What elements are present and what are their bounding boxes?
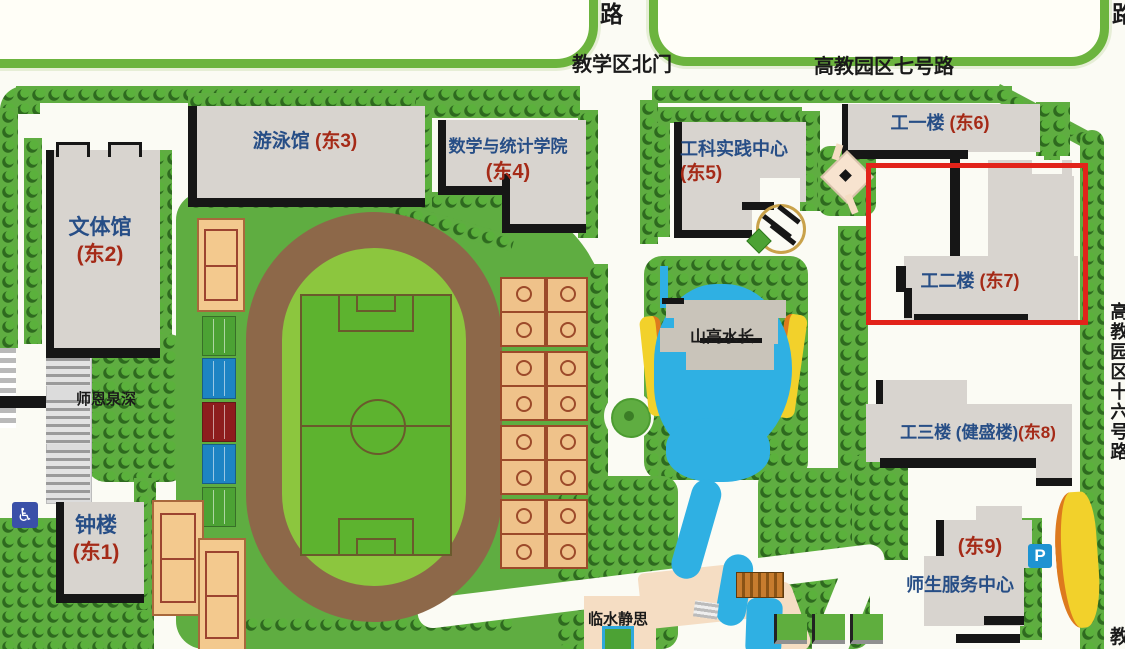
east1-tag: (东1) bbox=[73, 541, 120, 564]
building-east9-tag-label: (东9) bbox=[940, 534, 1020, 560]
parking-icon: P bbox=[1028, 544, 1052, 568]
building-east1-label: 钟楼 (东1) bbox=[58, 512, 134, 567]
pond-label: 山高水长 bbox=[690, 328, 754, 349]
roundabout-center bbox=[624, 411, 634, 421]
pond-south-lobe bbox=[666, 418, 770, 482]
small-court-green-2 bbox=[202, 487, 236, 527]
east4-tag: (东4) bbox=[486, 161, 530, 183]
trees-left-of-east2 bbox=[24, 138, 42, 344]
trees-left-of-east5 bbox=[652, 123, 670, 237]
building-east3 bbox=[188, 106, 425, 207]
east6-name: 工一楼 bbox=[890, 113, 944, 133]
east2-tag: (东2) bbox=[77, 243, 124, 266]
road-label-road-sixteen: 高教园区十六号路 bbox=[1106, 302, 1125, 462]
road-label-road-seven: 高教园区七号路 bbox=[814, 54, 954, 80]
building-east2-label: 文体馆 (东2) bbox=[50, 214, 150, 269]
small-court-green-1 bbox=[202, 316, 236, 356]
stair-flight-3 bbox=[46, 450, 90, 500]
campus-border-left bbox=[0, 108, 18, 348]
east4-name: 数学与统计学院 bbox=[449, 137, 568, 156]
east1-name: 钟楼 bbox=[75, 514, 117, 537]
trees-right-of-east6 bbox=[1036, 102, 1070, 156]
building-east9-shadow-1 bbox=[984, 616, 1024, 625]
building-east3-label: 游泳馆 (东3) bbox=[210, 130, 400, 155]
stream-steps bbox=[693, 600, 719, 619]
small-court-red bbox=[202, 402, 236, 442]
basketball-court-2 bbox=[546, 277, 588, 347]
campus-border-top-right bbox=[652, 86, 1012, 103]
planter-box-2 bbox=[812, 614, 845, 644]
building-east4-label: 数学与统计学院 (东4) bbox=[440, 136, 576, 185]
basketball-court-1 bbox=[500, 277, 546, 347]
tennis-court-south-2 bbox=[198, 538, 246, 649]
pitch-goal-bottom bbox=[356, 538, 396, 556]
accessibility-icon: ♿ bbox=[12, 502, 38, 528]
building-east8-shadow2 bbox=[1036, 478, 1072, 486]
planter-box-3 bbox=[850, 614, 883, 644]
soccer-pitch bbox=[300, 294, 452, 556]
building-east2-tab-2 bbox=[108, 142, 142, 157]
trees-above-east4 bbox=[432, 102, 580, 118]
road-label-top-left: 路 bbox=[600, 0, 623, 30]
east8-tag: (东8) bbox=[1018, 423, 1056, 442]
building-east6-label: 工一楼 (东6) bbox=[860, 112, 1020, 135]
basketball-court-5 bbox=[500, 425, 546, 495]
north-block-left bbox=[0, 0, 598, 68]
basketball-court-6 bbox=[546, 425, 588, 495]
west-crosswalk bbox=[0, 348, 16, 428]
east2-name: 文体馆 bbox=[69, 216, 132, 239]
planter-box-1 bbox=[774, 614, 807, 644]
east8-name: 工三楼 (健盛楼) bbox=[900, 423, 1018, 442]
building-east2-tab-1 bbox=[56, 142, 90, 157]
east3-tag: (东3) bbox=[315, 131, 357, 152]
road-label-bottom-right: 教 bbox=[1110, 626, 1125, 649]
east5-name: 工科实践中心 bbox=[680, 139, 788, 159]
road-label-top-right: 路 bbox=[1112, 0, 1125, 30]
wooden-bridge bbox=[736, 572, 784, 598]
east6-tag: (东6) bbox=[950, 113, 990, 133]
small-court-blue-1 bbox=[202, 358, 236, 399]
tennis-court-south-1 bbox=[152, 500, 204, 616]
basketball-court-4 bbox=[546, 351, 588, 421]
building-east9-name-label: 师生服务中心 bbox=[900, 574, 1020, 597]
building-east5-wing bbox=[674, 200, 752, 238]
basketball-court-8 bbox=[546, 499, 588, 569]
basketball-court-3 bbox=[500, 351, 546, 421]
pond-rock-edge-1 bbox=[662, 298, 684, 304]
stream-label: 临水静思 bbox=[588, 610, 648, 630]
campus-map-canvas: ♿ P 路 路 教学区北门 高教园区七号路 高教园区十六号路 教 文体馆 (东2… bbox=[0, 0, 1125, 649]
building-east9-shadow-2 bbox=[956, 634, 1020, 643]
spring-label: 师恩泉深 bbox=[76, 390, 136, 410]
building-east5-label: 工科实践中心 (东5) bbox=[680, 138, 802, 186]
highlight-rectangle bbox=[866, 163, 1088, 325]
tennis-court-north bbox=[197, 218, 245, 312]
west-wall bbox=[0, 396, 46, 408]
basketball-court-7 bbox=[500, 499, 546, 569]
small-court-blue-2 bbox=[202, 444, 236, 484]
pitch-goal-top bbox=[356, 294, 396, 312]
building-east8-label: 工三楼 (健盛楼)(东8) bbox=[880, 422, 1076, 444]
road-label-north-gate: 教学区北门 bbox=[572, 52, 672, 78]
east5-tag: (东5) bbox=[680, 163, 722, 184]
pitch-center-circle bbox=[350, 399, 406, 455]
building-east4-step bbox=[438, 186, 510, 195]
building-east8-shadow bbox=[880, 458, 1050, 468]
trees-above-east5 bbox=[658, 107, 802, 123]
east3-name: 游泳馆 bbox=[253, 131, 310, 152]
